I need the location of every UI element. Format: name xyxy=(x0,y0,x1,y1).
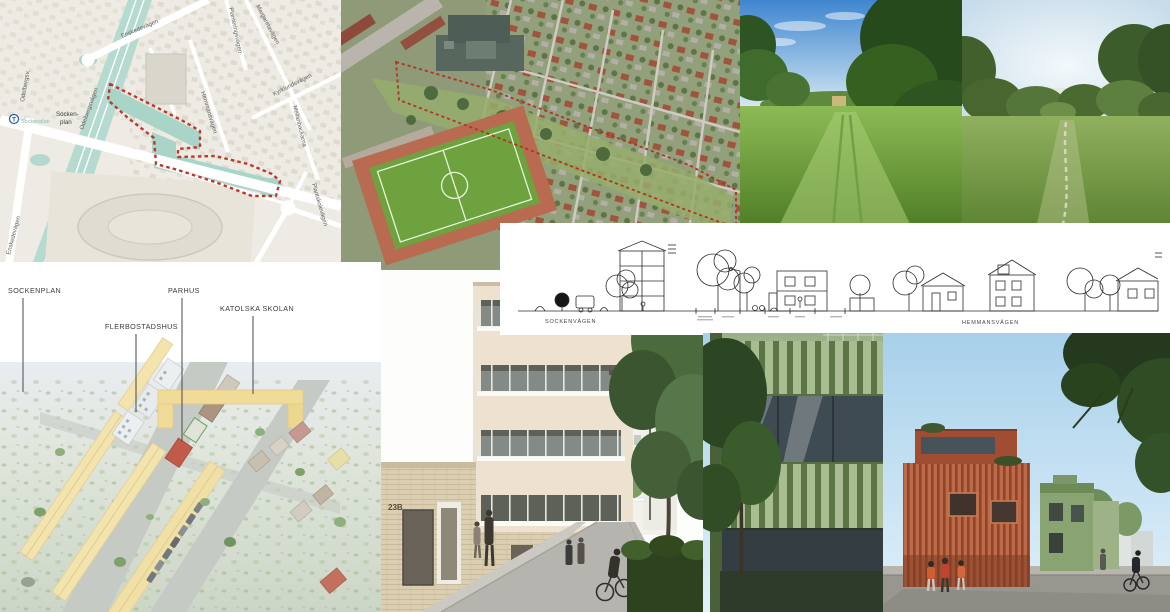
illus-label-sockenplan: SOCKENPLAN xyxy=(8,286,61,295)
axon-illustration-panel: SOCKENPLAN FLERBOSTADSHUS PARHUS KATOLSK… xyxy=(0,262,381,612)
city-map: T Sockenplan Enskedevägen Odelbergsvägen… xyxy=(0,0,341,270)
green-street-rendering xyxy=(703,333,1170,612)
section-label-sockenvagen: SOCKENVÄGEN xyxy=(545,318,596,325)
map-label-sockenplan-1: Socken- xyxy=(56,111,79,118)
park-photo-1 xyxy=(740,0,962,228)
ws-hedge xyxy=(621,535,710,612)
section-background xyxy=(500,223,1170,335)
green-street-img xyxy=(703,333,1170,612)
metro-t-glyph: T xyxy=(12,117,16,124)
park1-distant-house xyxy=(832,96,846,107)
park-photo-2 xyxy=(962,0,1170,228)
illus-label-flerbostadshus: FLERBOSTADSHUS xyxy=(105,322,178,331)
ws-address-sign: 23B xyxy=(388,503,403,512)
map-label-station: Sockenplan xyxy=(21,119,50,125)
gs-pedestrian xyxy=(1100,549,1106,570)
street-section-drawing: SOCKENVÄGEN HEMMANSVÄGEN xyxy=(500,223,1170,335)
park-photo-2-img xyxy=(962,0,1170,228)
park-photo-1-img xyxy=(740,0,962,228)
map-label-sockenplan-2: plan xyxy=(60,119,72,126)
planning-collage: T Sockenplan Enskedevägen Odelbergsvägen… xyxy=(0,0,1170,612)
street-section-panel: SOCKENVÄGEN HEMMANSVÄGEN xyxy=(500,223,1170,335)
axon-illustration: SOCKENPLAN FLERBOSTADSHUS PARHUS KATOLSK… xyxy=(0,262,381,612)
ws-entry-door xyxy=(403,510,433,585)
illus-label-parhus: PARHUS xyxy=(168,286,200,295)
gs-red-building xyxy=(903,423,1030,587)
metro-station-icon: T xyxy=(10,115,19,124)
city-map-panel: T Sockenplan Enskedevägen Odelbergsvägen… xyxy=(0,0,341,270)
section-label-hemmansvagen: HEMMANSVÄGEN xyxy=(962,319,1019,326)
illus-label-katolska-skolan: KATOLSKA SKOLAN xyxy=(220,304,294,313)
map-school-building xyxy=(146,54,186,104)
